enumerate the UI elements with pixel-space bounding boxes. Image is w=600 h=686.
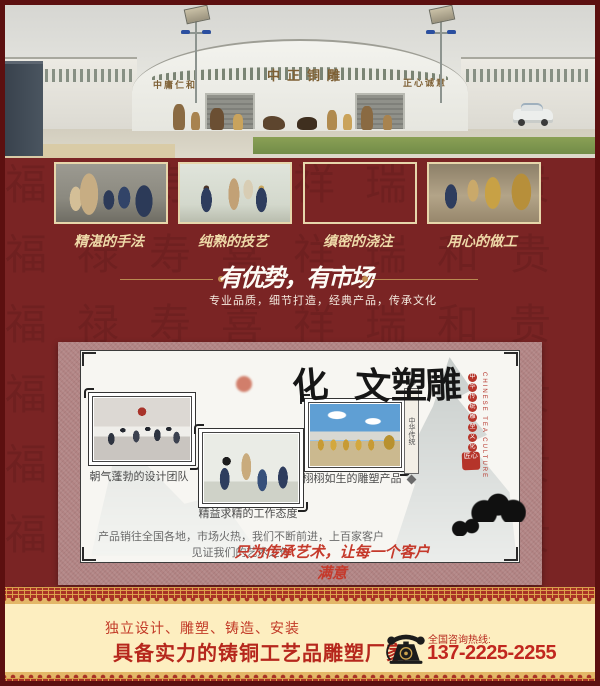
culture-slogan: 只为传承艺术，让每一个客户满意 — [232, 541, 432, 583]
statue — [233, 114, 243, 130]
vertical-english-label: CHINESE TEA CULTURE — [481, 372, 487, 502]
statue — [361, 106, 373, 130]
process-photo-sculpting — [54, 162, 168, 224]
process-caption: 纯熟的技艺 — [176, 231, 290, 251]
divider-line-right — [372, 279, 478, 280]
statue-horse — [263, 116, 285, 130]
advantage-subtitle: 专业品质，细节打造，经典产品，传承文化 — [209, 292, 437, 308]
lamp-head — [447, 30, 456, 34]
footer-banner: 独立设计、雕塑、铸造、安装 具备实力的铸铜工艺品雕塑厂家 全国咨询热线: 137… — [0, 604, 600, 672]
statue — [173, 104, 185, 130]
telephone-icon — [385, 628, 427, 671]
lamp-head — [426, 30, 435, 34]
process-caption: 用心的做工 — [425, 231, 539, 251]
window-band — [466, 69, 589, 82]
divider-line-left — [120, 279, 213, 280]
lamp-head — [181, 30, 190, 34]
lamp-head — [202, 30, 211, 34]
culture-vertical-title: 雕塑文化 — [424, 366, 468, 538]
statue — [210, 108, 224, 130]
process-photo-finishing — [427, 162, 541, 224]
photo — [204, 434, 298, 502]
statue — [191, 112, 200, 130]
statue — [383, 115, 392, 130]
hotline-phone-number: 137-2225-2255 — [427, 642, 556, 665]
page: 福禄寿喜祥瑞和贵 福禄寿喜祥瑞和贵 福禄寿喜祥瑞和贵 福禄寿喜祥瑞和贵 福禄寿喜… — [0, 0, 600, 686]
factory-sign-center: 中正铜雕 — [257, 65, 357, 84]
factory-gate — [5, 61, 43, 156]
culture-photo-design-team — [88, 392, 196, 466]
factory-panorama-photo: 中正铜雕 中庸仁和 正心诚意 — [5, 5, 595, 158]
parked-car — [513, 109, 553, 123]
factory-grass — [253, 137, 595, 154]
photo — [94, 398, 190, 460]
footer-services-line: 独立设计、雕塑、铸造、安装 — [105, 618, 300, 638]
street-lamp — [440, 11, 442, 103]
statue — [327, 110, 337, 130]
car-roof — [521, 103, 543, 111]
ink-cloud — [448, 518, 482, 536]
process-caption: 缜密的浇注 — [301, 231, 415, 251]
culture-caption: 精益求精的工作态度 — [194, 505, 302, 521]
solar-panel — [429, 5, 456, 24]
factory-sign-left: 中庸仁和 — [153, 78, 197, 91]
seal-dot-column: 中华传统雕塑文化 — [468, 372, 477, 453]
advantage-title: 有优势，有市场 — [205, 258, 385, 293]
red-seal-stamp: 匠心 — [462, 452, 481, 471]
lamp-arm — [181, 32, 211, 34]
solar-panel — [184, 5, 211, 24]
statue-horse — [297, 117, 317, 130]
street-lamp — [195, 11, 197, 103]
process-caption: 精湛的手法 — [52, 231, 166, 251]
process-photo-craft — [178, 162, 292, 224]
divider-dot-right — [362, 276, 368, 282]
footer-company-line: 具备实力的铸铜工艺品雕塑厂家 — [113, 637, 407, 666]
statue — [343, 114, 352, 130]
lamp-arm — [426, 32, 456, 34]
culture-caption: 朝气蓬勃的设计团队 — [84, 468, 194, 484]
red-sun — [236, 376, 252, 392]
culture-photo-work-attitude — [198, 428, 304, 508]
process-photo-casting — [303, 162, 417, 224]
meander-border-bottom — [0, 678, 600, 686]
